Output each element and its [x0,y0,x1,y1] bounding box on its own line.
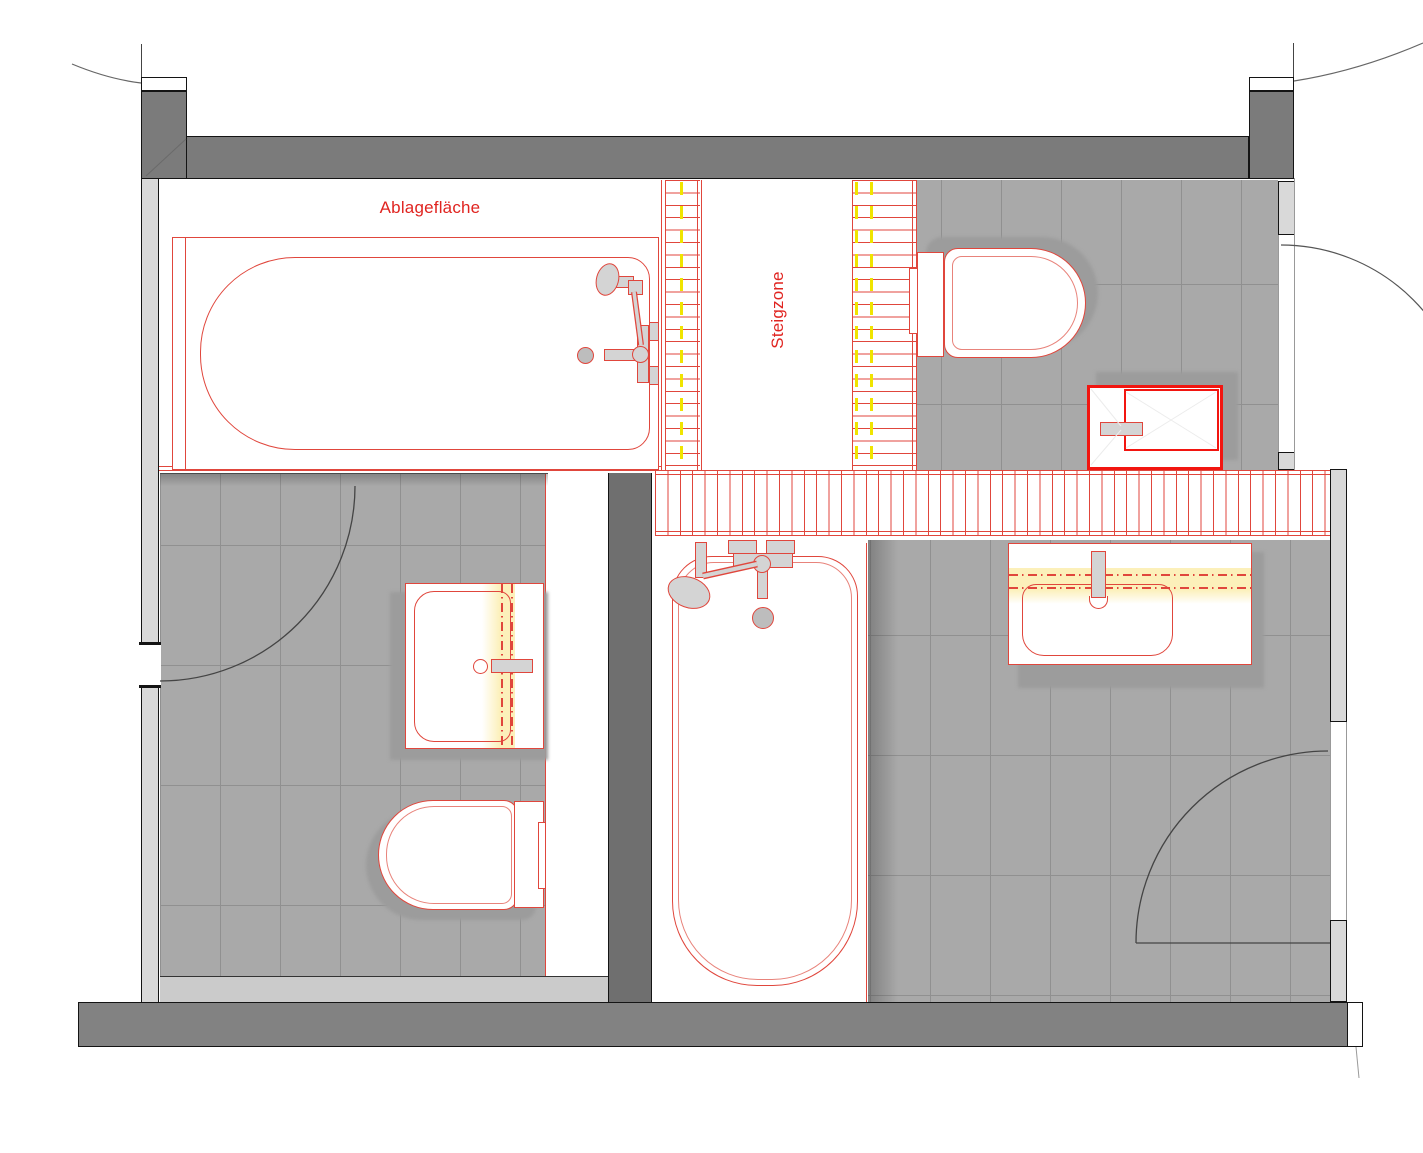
sink-faucet-handle [491,659,533,673]
door-jamb-line [1293,43,1294,77]
axis-dashdot-line [1009,574,1251,576]
axis-yellow-dash [680,182,683,470]
flush-plate [538,822,546,889]
wall-face-line [1330,722,1331,920]
wall-face-line [1278,235,1279,452]
toilet-seat-line [952,256,1078,350]
door-arc-top-right [1294,43,1423,81]
riser-border-line [665,180,666,470]
wall-face-line [1346,722,1347,920]
riser-hatch-left [666,180,700,470]
door-frame-right-mid [1278,452,1295,470]
faucet-part [628,280,643,295]
wall-partition-center [608,473,652,1002]
wall-right-block [1330,920,1347,1002]
sink-faucet-hole [473,659,488,674]
wall-left-opening [139,642,161,688]
wall-top-right-column [1249,91,1294,179]
flush-plate [909,268,918,334]
faucet-knob [632,346,649,363]
wall-face-line [1294,178,1295,470]
sink-faucet-handle [1091,551,1106,598]
faucet-knob [753,555,771,573]
faucet-tab [649,322,659,341]
riser-border-line [701,180,702,470]
axis-dashdot-line [1009,587,1251,589]
wall-top-band [186,136,1249,179]
riser-border-line [852,180,853,470]
axis-yellow-dash [870,182,873,470]
faucet-pipe [695,542,707,578]
faucet-tab [728,540,757,554]
faucet-tab [649,366,659,385]
riser-hatch-right [853,180,917,470]
faucet-tab [766,540,795,554]
toilet-tank [917,252,944,357]
door-arc-top-left [72,64,141,83]
riser-border-line [697,180,698,470]
floor-shadow-band [160,473,548,486]
reference-drop-line [1356,1047,1359,1078]
shower-handle [1100,422,1143,436]
shower-tray-inner [1124,389,1219,451]
wall-top-left-column [141,91,187,179]
door-threshold [1249,77,1294,91]
wall-left [141,179,159,1002]
floor-plan: Ablagefläche Steigzone [0,0,1423,1153]
label-ablageflaeche: Ablagefläche [340,198,520,218]
toilet-seat-line [386,806,512,904]
wall-bottom-end-block [1347,1002,1363,1047]
label-steigzone: Steigzone [768,250,788,370]
prewall-line [159,470,661,471]
installation-strip-line [655,531,1330,532]
floor-shadow-band [868,540,898,1002]
tub-drain [752,607,774,629]
installation-strip-line [655,474,1330,475]
bathtub-top-platform-line [185,237,186,470]
wall-bottom [78,1002,1348,1047]
floor-step-band [160,976,608,1002]
door-jamb-line [141,44,142,77]
riser-border-line [661,180,662,470]
axis-yellow-dash [855,182,858,470]
prewall-line [866,543,867,1002]
wall-right-block [1330,469,1347,722]
door-frame-right-upper [1278,181,1295,235]
installation-strip [655,470,1330,536]
door-threshold [141,77,187,91]
tub-drain [577,347,594,364]
corridor-niche [545,473,608,1002]
door-arc-right-upper [1281,245,1423,432]
